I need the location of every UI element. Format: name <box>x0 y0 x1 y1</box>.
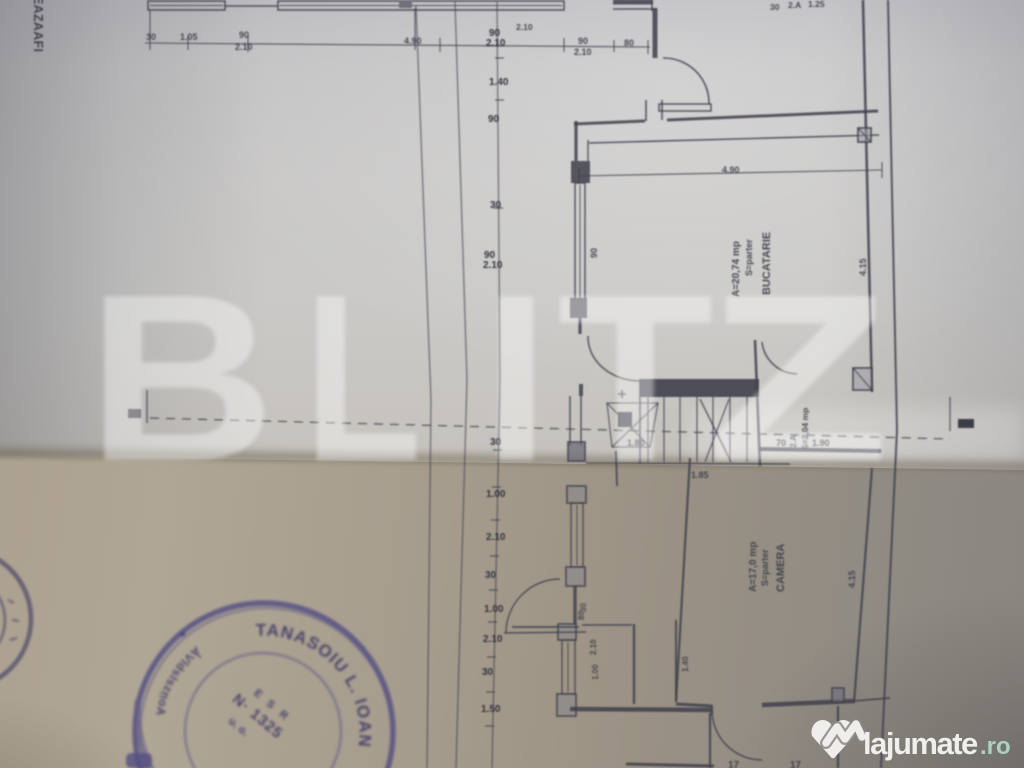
svg-text:.ro: .ro <box>980 733 1011 760</box>
svg-text:lajumate: lajumate <box>863 726 978 761</box>
